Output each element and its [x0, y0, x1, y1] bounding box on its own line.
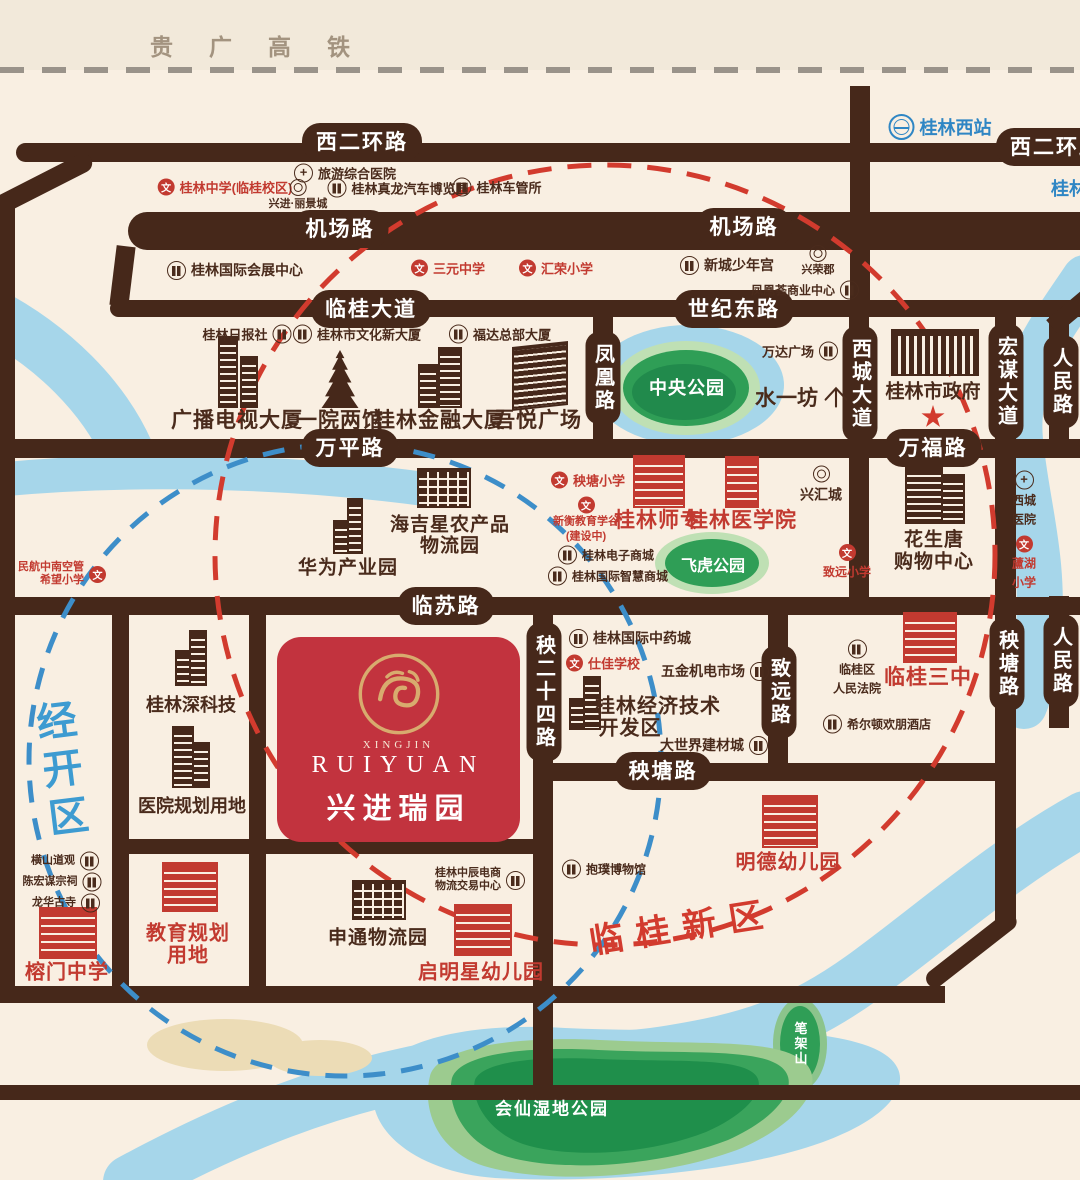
- poi-label: 临桂区: [839, 661, 875, 678]
- poi-shenkeji: 桂林深科技: [146, 691, 236, 717]
- poi-hengshan: 横山道观: [31, 852, 99, 871]
- poi-sanyuan-middle: 三元中学: [411, 259, 485, 278]
- feihu-park-label: 飞虎公园: [681, 552, 745, 576]
- poi-shuiyifang: 水一坊: [755, 382, 849, 412]
- poi-medical-college: 桂林医学院: [687, 504, 797, 534]
- poi-baopu-museum: 抱璞博物馆: [562, 860, 646, 879]
- brand-medallion-icon: [813, 466, 830, 483]
- huawei-park-icon: [333, 504, 361, 554]
- building-icon: [562, 860, 581, 879]
- building-icon: [823, 715, 842, 734]
- poi-zhongchen-logistics: 桂林中辰电商 物流交易中心: [435, 867, 525, 893]
- poi-luhu-primary: 蘆湖 小学: [1012, 536, 1036, 591]
- poi-haijixing-2: 物流园: [420, 531, 480, 558]
- poi-electronics-mall: 桂林电子商城: [558, 546, 654, 565]
- roadlabel-jichang-2: 机场路: [696, 208, 793, 246]
- poi-sublabel: 小学: [1012, 574, 1036, 591]
- poi-longhua: 龙华古寺: [32, 894, 100, 913]
- poi-sublabel: 希望小学: [40, 574, 84, 587]
- poi-west-station: 桂林西站: [889, 114, 992, 140]
- poi-label: 桂林国际智慧商城: [572, 568, 668, 585]
- poi-hospital-plan: 医院规划用地: [138, 792, 246, 818]
- building-icon: [680, 256, 699, 275]
- railway-station-icon: [889, 114, 915, 140]
- poi-label: 秧塘小学: [573, 471, 625, 490]
- poi-zhenlong-auto: 桂林真龙汽车博览园: [327, 179, 468, 198]
- roadlabel-wanping: 万平路: [302, 429, 399, 467]
- roadlabel-xierhuan-2: 西二环路: [996, 128, 1080, 166]
- roadlabel-fenghuang: 凤凰路: [586, 332, 621, 425]
- poi-xingrongjun: 兴荣郡: [802, 245, 835, 277]
- project-name-en: RUIYUAN: [312, 752, 486, 779]
- poi-culture-tower: 桂林市文化新大厦: [293, 325, 421, 344]
- poi-label: 桂林国际会展中心: [191, 260, 303, 280]
- poi-hardware-market: 五金机电市场: [661, 661, 769, 681]
- rongmen-building-icon: [39, 913, 93, 959]
- school-icon: [519, 260, 536, 277]
- map-canvas: 贵广高铁: [0, 0, 1080, 1180]
- building-icon: [569, 629, 588, 648]
- government-building-icon: [891, 338, 975, 376]
- guilin-direction-label: 桂林: [1051, 175, 1080, 201]
- building-icon: [819, 342, 838, 361]
- poi-huasheng-2: 购物中心: [894, 547, 974, 574]
- poi-label: 横山道观: [31, 855, 75, 868]
- poi-label: 水一坊: [755, 382, 818, 412]
- central-park-label: 中央公园: [649, 374, 725, 400]
- roadlabel-xierhuan: 西二环路: [302, 123, 422, 161]
- project-marker: XINGJIN RUIYUAN 兴进瑞园: [277, 637, 520, 842]
- poi-label: 三元中学: [433, 259, 485, 278]
- poi-broadcast-tower: 广播电视大厦: [171, 404, 303, 434]
- building-icon: [452, 178, 471, 197]
- project-name-zh: 兴进瑞园: [326, 785, 470, 827]
- school-icon: [551, 472, 568, 489]
- road-jichang: [128, 212, 1080, 250]
- jingkaiqu-label: 经开区: [21, 697, 96, 847]
- poi-wuyue-plaza: 吾悦广场: [494, 404, 582, 434]
- school-icon: [838, 544, 855, 561]
- shizhuan-building-icon: [633, 461, 681, 508]
- building-icon: [840, 281, 859, 300]
- building-icon: [548, 567, 567, 586]
- poi-guilin-direction: 桂林: [1051, 175, 1080, 201]
- mingde-building-icon: [762, 801, 814, 848]
- building-icon: [749, 736, 768, 755]
- building-icon: [750, 662, 769, 681]
- poi-label: 桂林真龙汽车博览园: [351, 179, 468, 198]
- school-icon: [89, 566, 106, 583]
- poi-xinheng-edu: 新衡教育学谷 (建设中): [553, 497, 619, 544]
- poi-label: 新衡教育学谷: [553, 516, 619, 529]
- road-south-1: [0, 986, 945, 1003]
- roadlabel-wanfu: 万福路: [885, 429, 982, 467]
- haijixing-warehouse-icon: [417, 474, 467, 508]
- poi-zhiyuan-prim: 致远小学: [823, 544, 871, 580]
- poi-shentong: 申通物流园: [328, 923, 428, 950]
- building-icon: [449, 325, 468, 344]
- poi-cheguansuo: 桂林车管所: [452, 178, 541, 197]
- poi-ribaoshe: 桂林日报社: [202, 325, 291, 344]
- building-icon: [167, 261, 186, 280]
- poi-econ-zone-2: 开发区: [599, 712, 662, 741]
- poi-label: 凤凰荟商业中心: [751, 282, 835, 299]
- poi-fenghuanghui: 凤凰荟商业中心: [751, 281, 859, 300]
- poi-yangtang-primary: 秧塘小学: [551, 471, 625, 490]
- poi-smart-mall: 桂林国际智慧商城: [548, 567, 668, 586]
- poi-xicheng-hospital: 西城 医院: [1012, 471, 1036, 528]
- poi-label: 致远小学: [823, 563, 871, 580]
- huixian-wetland-label: 会仙湿地公园: [495, 1095, 609, 1120]
- poi-label: 西城: [1012, 492, 1036, 509]
- school-icon: [1015, 536, 1032, 553]
- poi-label: 桂林中辰电商: [435, 867, 501, 880]
- medical-college-icon: [725, 462, 755, 508]
- poi-mingde: 明德幼儿园: [736, 846, 841, 875]
- building-icon: [293, 325, 312, 344]
- poi-label: 兴荣郡: [802, 264, 835, 277]
- poi-finance-tower: 桂林金融大厦: [374, 404, 506, 434]
- poi-label-lines: 桂林中辰电商 物流交易中心: [435, 867, 501, 893]
- poi-label: 汇荣小学: [541, 259, 593, 278]
- poi-label: 抱璞博物馆: [586, 861, 646, 878]
- poi-convention-center: 桂林国际会展中心: [167, 260, 303, 280]
- roadlabel-yang24: 秧二十四路: [527, 623, 562, 762]
- poi-label: 新城少年宫: [704, 255, 774, 275]
- railway-label: 贵广高铁: [150, 28, 386, 62]
- poi-label: 万达广场: [762, 342, 814, 361]
- eduplan-building-icon: [162, 868, 214, 912]
- poi-label: 陈宏谋宗祠: [23, 876, 78, 889]
- qimingxing-building-icon: [454, 910, 508, 956]
- poi-label: 仕佳学校: [588, 654, 640, 673]
- brand-medallion-icon: [289, 179, 306, 196]
- poi-label: 桂林电子商城: [582, 547, 654, 564]
- poi-label: 兴汇城: [800, 485, 842, 505]
- brand-medallion-icon: [810, 245, 827, 262]
- dragon-emblem-icon: [356, 651, 442, 737]
- poi-label: 桂林市文化新大厦: [317, 325, 421, 344]
- poi-sublabel: 物流交易中心: [435, 880, 501, 893]
- building-icon: [273, 325, 292, 344]
- poi-label: 五金机电市场: [661, 661, 745, 681]
- road-west-edge: [0, 200, 15, 1003]
- poi-huirong-primary: 汇荣小学: [519, 259, 593, 278]
- west-station-label: 桂林西站: [920, 114, 992, 140]
- school-icon: [566, 655, 583, 672]
- sand-hill-2: [268, 1040, 372, 1076]
- roadlabel-yangtang-v: 秧塘路: [990, 618, 1025, 711]
- building-icon: [847, 640, 866, 659]
- poi-label: 兴进·丽景城: [269, 198, 328, 211]
- school-icon: [158, 179, 175, 196]
- school-icon: [411, 260, 428, 277]
- wuyue-plaza-icon: [512, 350, 564, 408]
- poi-label: 希尔顿欢朋酒店: [847, 716, 931, 733]
- poi-yiyuan-liangguan: 一院两馆: [296, 404, 384, 434]
- poi-label: 桂林国际中药城: [593, 628, 691, 648]
- project-brand: XINGJIN: [363, 739, 434, 751]
- hospital-icon: [1014, 471, 1033, 490]
- roadlabel-lingui-avenue: 临桂大道: [311, 290, 431, 328]
- road-grid-w2: [249, 597, 266, 1003]
- poi-court: 临桂区 人民法院: [833, 640, 881, 697]
- roadlabel-renmin: 人民路: [1044, 336, 1079, 429]
- wetland-water: [373, 1027, 900, 1180]
- sand-hill: [147, 1019, 303, 1071]
- poi-wanda-plaza: 万达广场: [762, 342, 838, 361]
- poi-label: 桂林日报社: [202, 325, 267, 344]
- poi-rongmen: 榕门中学: [25, 956, 109, 985]
- poi-sublabel: 医院: [1012, 511, 1036, 528]
- poi-xinghuicheng: 兴汇城: [800, 466, 842, 505]
- huasheng-mall-icon: [905, 472, 961, 524]
- shentong-warehouse-icon: [352, 886, 402, 920]
- poi-city-government: 桂林市政府: [885, 377, 980, 404]
- building-icon: [83, 873, 102, 892]
- bijia-hill-label: 笔架山: [791, 1022, 810, 1067]
- poi-qimingxing: 启明星幼儿园: [418, 956, 544, 985]
- poi-sublabel: 人民法院: [833, 680, 881, 697]
- river-west-band: [0, 472, 432, 490]
- wetland-outer: [428, 1039, 813, 1177]
- poi-lijingcheng: 兴进·丽景城: [269, 179, 328, 211]
- pavilion-icon: [823, 384, 849, 410]
- poi-youth-palace: 新城少年宫: [680, 255, 774, 275]
- poi-chenhongmou: 陈宏谋宗祠: [23, 873, 102, 892]
- poi-minhang-hope-primary: 民航中南空管 希望小学: [18, 561, 106, 587]
- poi-hilton: 希尔顿欢朋酒店: [823, 715, 931, 734]
- lingui3-building-icon: [903, 618, 953, 663]
- road-xierhuan: [16, 143, 1080, 162]
- roadlabel-linsu: 临苏路: [398, 587, 495, 625]
- poi-label: 龙华古寺: [32, 897, 76, 910]
- building-icon: [327, 179, 346, 198]
- poi-label: 桂林车管所: [476, 178, 541, 197]
- poi-label: 大世界建材城: [660, 735, 744, 755]
- poi-lingui-no3: 临桂三中: [884, 661, 972, 691]
- road-grid-w1: [112, 597, 129, 1003]
- river-west-upper: [0, 308, 128, 452]
- road-connector-west: [109, 245, 135, 307]
- poi-sublabel: (建设中): [566, 531, 606, 544]
- roadlabel-renmin-2: 人民路: [1044, 615, 1079, 708]
- poi-label: 民航中南空管: [18, 561, 84, 574]
- finance-tower-icon: [418, 353, 462, 408]
- roadlabel-jichang: 机场路: [292, 210, 389, 248]
- building-icon: [506, 871, 525, 890]
- poi-world-materials: 大世界建材城: [660, 735, 768, 755]
- broadcast-tower-icon: [214, 342, 260, 408]
- poi-shijia-school: 仕佳学校: [566, 654, 640, 673]
- building-icon: [558, 546, 577, 565]
- roadlabel-hongmou: 宏谋大道: [989, 324, 1024, 440]
- poi-huawei-park: 华为产业园: [298, 553, 398, 580]
- roadlabel-yangtang: 秧塘路: [615, 752, 712, 790]
- government-star-icon: [921, 405, 945, 429]
- building-icon: [81, 894, 100, 913]
- poi-eduplan-2: 用地: [167, 939, 209, 968]
- poi-fuda-tower: 福达总部大厦: [449, 325, 551, 344]
- school-icon: [578, 497, 595, 514]
- lingui-new-district-label: 临桂新区: [585, 886, 778, 964]
- poi-label-lines: 民航中南空管 希望小学: [18, 561, 84, 587]
- hospital-plan-icon: [172, 732, 208, 788]
- poi-label: 福达总部大厦: [473, 325, 551, 344]
- poi-herb-city: 桂林国际中药城: [569, 628, 691, 648]
- roadlabel-zhiyuan: 致远路: [762, 646, 797, 739]
- shenkeji-icon: [175, 636, 205, 686]
- railway-dashed-line: [0, 67, 1080, 73]
- building-icon: [80, 852, 99, 871]
- pagoda-icon: [318, 350, 362, 408]
- poi-label: 蘆湖: [1012, 555, 1036, 572]
